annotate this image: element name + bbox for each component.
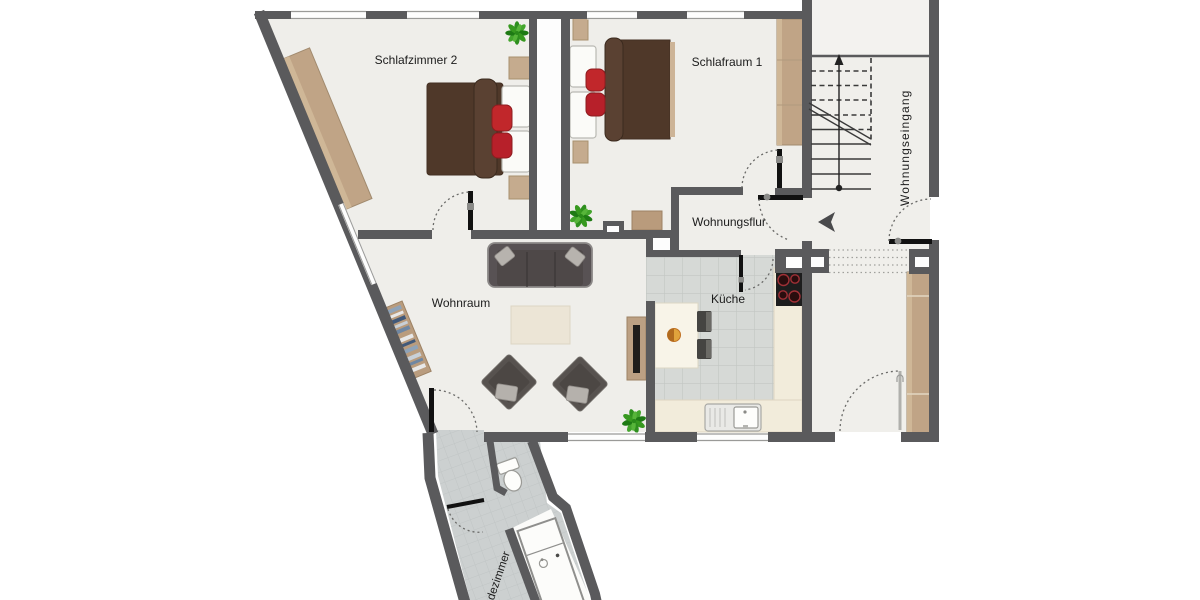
svg-text:Wohnungseingang: Wohnungseingang <box>898 90 912 206</box>
svg-text:Wohnraum: Wohnraum <box>432 296 490 310</box>
svg-text:Küche: Küche <box>711 292 745 306</box>
svg-text:Schlafraum 1: Schlafraum 1 <box>692 55 763 69</box>
svg-text:Schlafzimmer 2: Schlafzimmer 2 <box>375 53 458 67</box>
svg-text:Wohnungsflur: Wohnungsflur <box>692 215 766 229</box>
